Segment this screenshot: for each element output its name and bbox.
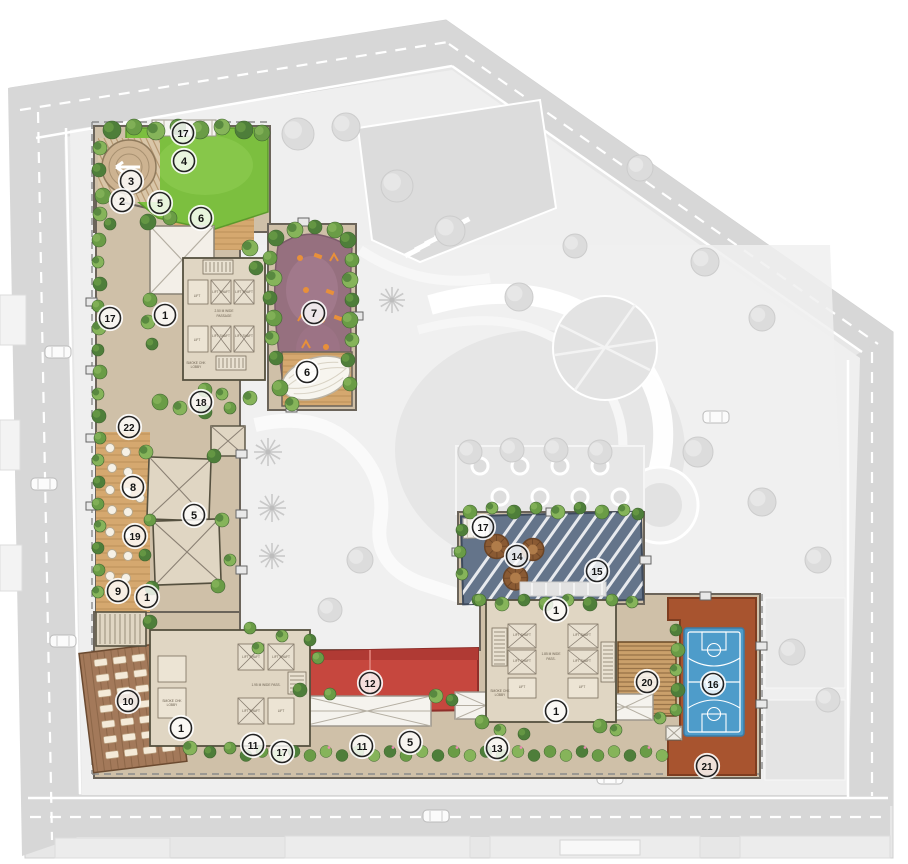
svg-text:13: 13 <box>491 744 503 755</box>
plan-marker-1[interactable]: 1 <box>544 699 568 723</box>
floor-label: LIFT SHAFT <box>272 655 290 659</box>
plan-marker-11[interactable]: 11 <box>241 733 265 757</box>
svg-text:6: 6 <box>304 367 310 379</box>
svg-text:11: 11 <box>248 741 259 752</box>
svg-text:2: 2 <box>119 196 125 208</box>
plan-marker-20[interactable]: 20 <box>635 670 659 694</box>
svg-text:1: 1 <box>178 723 184 735</box>
floor-label: LIFT <box>579 685 586 689</box>
svg-text:7: 7 <box>311 308 317 320</box>
floor-label: LIFT SHAFT <box>235 334 253 338</box>
plan-marker-5[interactable]: 5 <box>182 503 206 527</box>
floor-label: LIFT <box>194 338 201 342</box>
plan-marker-16[interactable]: 16 <box>701 672 725 696</box>
plan-marker-19[interactable]: 19 <box>123 524 147 548</box>
plan-marker-1[interactable]: 1 <box>153 303 177 327</box>
plan-marker-8[interactable]: 8 <box>121 475 145 499</box>
svg-text:1: 1 <box>144 592 150 604</box>
floor-label: PASS. <box>546 657 555 661</box>
floor-label: 1.85 M WIDE <box>542 652 561 656</box>
plan-marker-12[interactable]: 12 <box>358 671 382 695</box>
svg-text:1: 1 <box>162 310 168 322</box>
floor-label: LIFT SHAFT <box>212 290 230 294</box>
floor-label: PASSAGE <box>217 314 232 318</box>
svg-text:17: 17 <box>177 129 189 140</box>
floor-label: LIFT SHAFT <box>513 659 531 663</box>
plan-marker-1[interactable]: 1 <box>544 598 568 622</box>
plan-marker-17[interactable]: 17 <box>270 740 294 764</box>
svg-text:5: 5 <box>157 198 163 210</box>
plan-marker-21[interactable]: 21 <box>695 754 719 778</box>
plan-marker-1[interactable]: 1 <box>169 716 193 740</box>
svg-text:5: 5 <box>191 510 197 522</box>
plan-marker-14[interactable]: 14 <box>505 544 529 568</box>
site-plan: LIFTLIFT SHAFTLIFT SHAFT2.50 M WIDEPASSA… <box>0 0 908 864</box>
svg-text:15: 15 <box>591 567 603 578</box>
floor-label: LIFT SHAFT <box>573 659 591 663</box>
plan-marker-6[interactable]: 6 <box>189 206 213 230</box>
svg-text:1: 1 <box>553 605 559 617</box>
svg-text:3: 3 <box>128 176 134 188</box>
svg-text:6: 6 <box>198 213 204 225</box>
floor-label: LIFT <box>278 709 285 713</box>
plan-marker-9[interactable]: 9 <box>106 579 130 603</box>
floor-label: LIFT <box>194 294 201 298</box>
plan-marker-22[interactable]: 22 <box>117 415 141 439</box>
svg-text:16: 16 <box>707 680 719 691</box>
floor-label: LIFT SHAFT <box>242 709 260 713</box>
plan-marker-17[interactable]: 17 <box>98 306 122 330</box>
svg-text:11: 11 <box>357 742 368 753</box>
plan-marker-5[interactable]: 5 <box>148 191 172 215</box>
svg-text:17: 17 <box>104 314 116 325</box>
svg-text:21: 21 <box>701 762 713 773</box>
svg-text:5: 5 <box>407 737 413 749</box>
svg-text:10: 10 <box>122 697 134 708</box>
plan-marker-1[interactable]: 1 <box>135 585 159 609</box>
floor-label: LOBBY <box>191 365 203 369</box>
svg-text:19: 19 <box>129 532 141 543</box>
floor-label: LIFT SHAFT <box>235 290 253 294</box>
plan-marker-5[interactable]: 5 <box>398 730 422 754</box>
plan-marker-11[interactable]: 11 <box>350 734 374 758</box>
plan-marker-17[interactable]: 17 <box>471 515 495 539</box>
svg-text:9: 9 <box>115 586 121 598</box>
plan-marker-7[interactable]: 7 <box>302 301 326 325</box>
floor-label: 1.95 M WIDE PASS. <box>252 683 281 687</box>
plan-marker-15[interactable]: 15 <box>585 559 609 583</box>
dome-structure <box>553 296 657 400</box>
svg-text:14: 14 <box>511 552 523 563</box>
plan-marker-13[interactable]: 13 <box>485 736 509 760</box>
plan-marker-4[interactable]: 4 <box>172 149 196 173</box>
floor-label: LIFT SHAFT <box>242 655 260 659</box>
plan-marker-18[interactable]: 18 <box>189 390 213 414</box>
floor-label: LIFT SHAFT <box>513 633 531 637</box>
floor-label: LOBBY <box>167 703 179 707</box>
site-plan-svg: LIFTLIFT SHAFTLIFT SHAFT2.50 M WIDEPASSA… <box>0 0 908 864</box>
svg-text:20: 20 <box>641 678 653 689</box>
floor-label: LIFT SHAFT <box>573 633 591 637</box>
plan-marker-6[interactable]: 6 <box>295 360 319 384</box>
plan-marker-2[interactable]: 2 <box>110 189 134 213</box>
svg-text:18: 18 <box>195 398 207 409</box>
floor-label: LIFT SHAFT <box>212 334 230 338</box>
floor-label: 2.50 M WIDE <box>215 309 234 313</box>
svg-text:17: 17 <box>477 523 489 534</box>
svg-text:22: 22 <box>123 423 135 434</box>
floor-label: LIFT <box>519 685 526 689</box>
floor-label: LOBBY <box>495 693 507 697</box>
svg-text:12: 12 <box>364 679 376 690</box>
svg-text:8: 8 <box>130 482 136 494</box>
svg-text:1: 1 <box>553 706 559 718</box>
svg-text:4: 4 <box>181 156 188 168</box>
plan-marker-17[interactable]: 17 <box>171 121 195 145</box>
svg-text:17: 17 <box>276 748 288 759</box>
plan-marker-10[interactable]: 10 <box>116 689 140 713</box>
